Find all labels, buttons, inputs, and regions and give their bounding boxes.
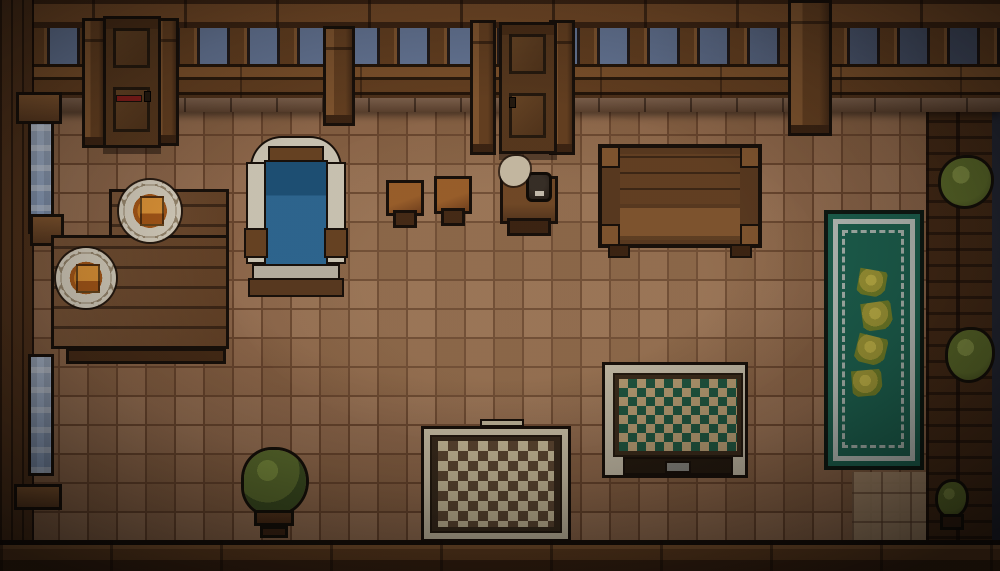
- window-sill: [14, 484, 62, 510]
- table-corner-post: [600, 224, 620, 246]
- rug-diamond-field: [619, 379, 737, 451]
- plate-of-food[interactable]: [56, 248, 116, 308]
- door-handle: [144, 91, 151, 102]
- door-panel: [113, 28, 149, 68]
- stool[interactable]: [434, 176, 472, 214]
- teal-runner-rug[interactable]: [824, 210, 924, 470]
- plant-pot-base: [260, 526, 288, 538]
- stool[interactable]: [386, 180, 424, 216]
- door-handle: [509, 97, 516, 108]
- diamond-pattern-rug[interactable]: [602, 362, 748, 478]
- bottom-wall: [0, 540, 1000, 571]
- small-plant-pot: [940, 514, 964, 530]
- nightstand[interactable]: [500, 168, 560, 240]
- bed-wood-notch: [326, 230, 346, 256]
- bed-footboard: [254, 266, 338, 280]
- plant-pot: [254, 510, 294, 526]
- checkered-rug[interactable]: [421, 426, 571, 542]
- table-corner-post: [600, 146, 620, 168]
- bed-blue-quilt: [266, 162, 326, 266]
- table-bench[interactable]: [66, 348, 226, 364]
- rug-flower-motif: [851, 369, 883, 398]
- table-corner-post: [740, 224, 760, 246]
- bed-footboard-wood: [250, 280, 342, 295]
- bed-wood-notch: [246, 230, 266, 256]
- rug-flower-motif: [856, 268, 888, 298]
- door-panel: [509, 34, 545, 74]
- central-pillar: [788, 0, 832, 136]
- rug-checker-field: [438, 441, 554, 527]
- dark-lamp[interactable]: [526, 172, 552, 202]
- rug-gray-handle: [665, 461, 691, 473]
- rug-tab: [480, 419, 524, 427]
- bed[interactable]: [246, 138, 346, 295]
- door-red-sign: [116, 95, 142, 102]
- plate-of-food[interactable]: [119, 180, 181, 242]
- door-left[interactable]: [103, 16, 161, 148]
- hanging-post: [323, 26, 355, 126]
- plant-bush: [244, 450, 306, 514]
- rug-flower-motif: [860, 300, 894, 332]
- game-scene: [0, 0, 1000, 571]
- big-table[interactable]: [598, 144, 762, 248]
- potted-plant[interactable]: [242, 450, 308, 542]
- door-center[interactable]: [499, 22, 557, 154]
- wall-post: [470, 20, 496, 155]
- table-plank-bottom: [620, 208, 740, 240]
- window-left-lower: [28, 354, 54, 476]
- table-corner-post: [740, 146, 760, 168]
- table-plank-top: [620, 154, 740, 204]
- wall-ledge: [16, 92, 62, 124]
